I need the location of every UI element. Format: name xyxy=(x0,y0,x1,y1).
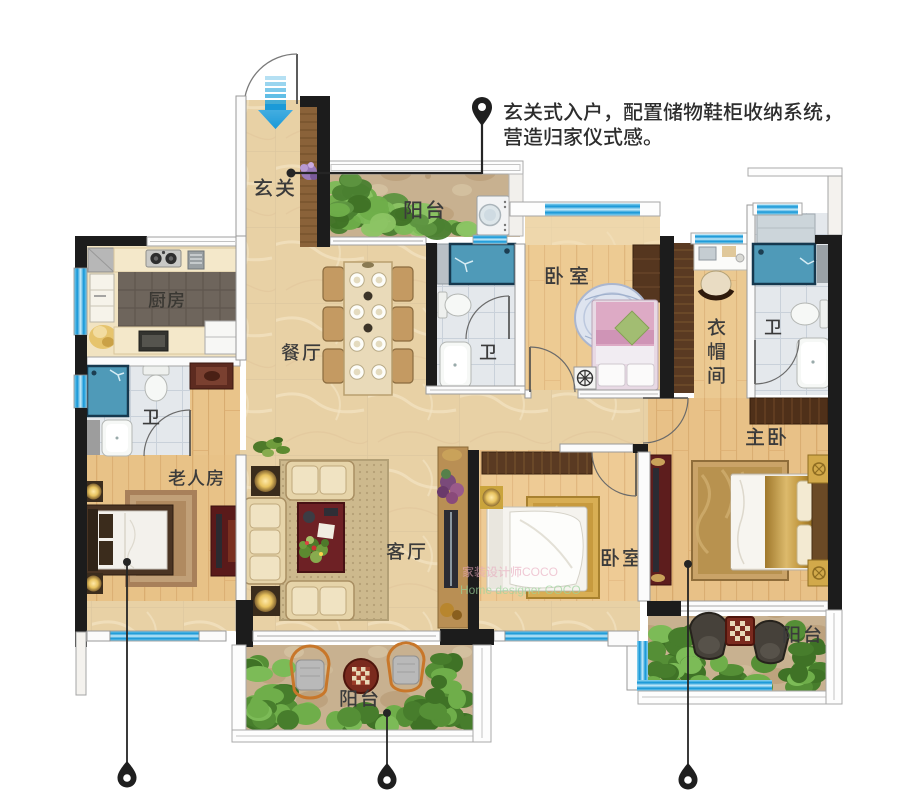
svg-text:Home designer COCO: Home designer COCO xyxy=(460,583,581,597)
svg-text:COCO: COCO xyxy=(522,565,558,579)
